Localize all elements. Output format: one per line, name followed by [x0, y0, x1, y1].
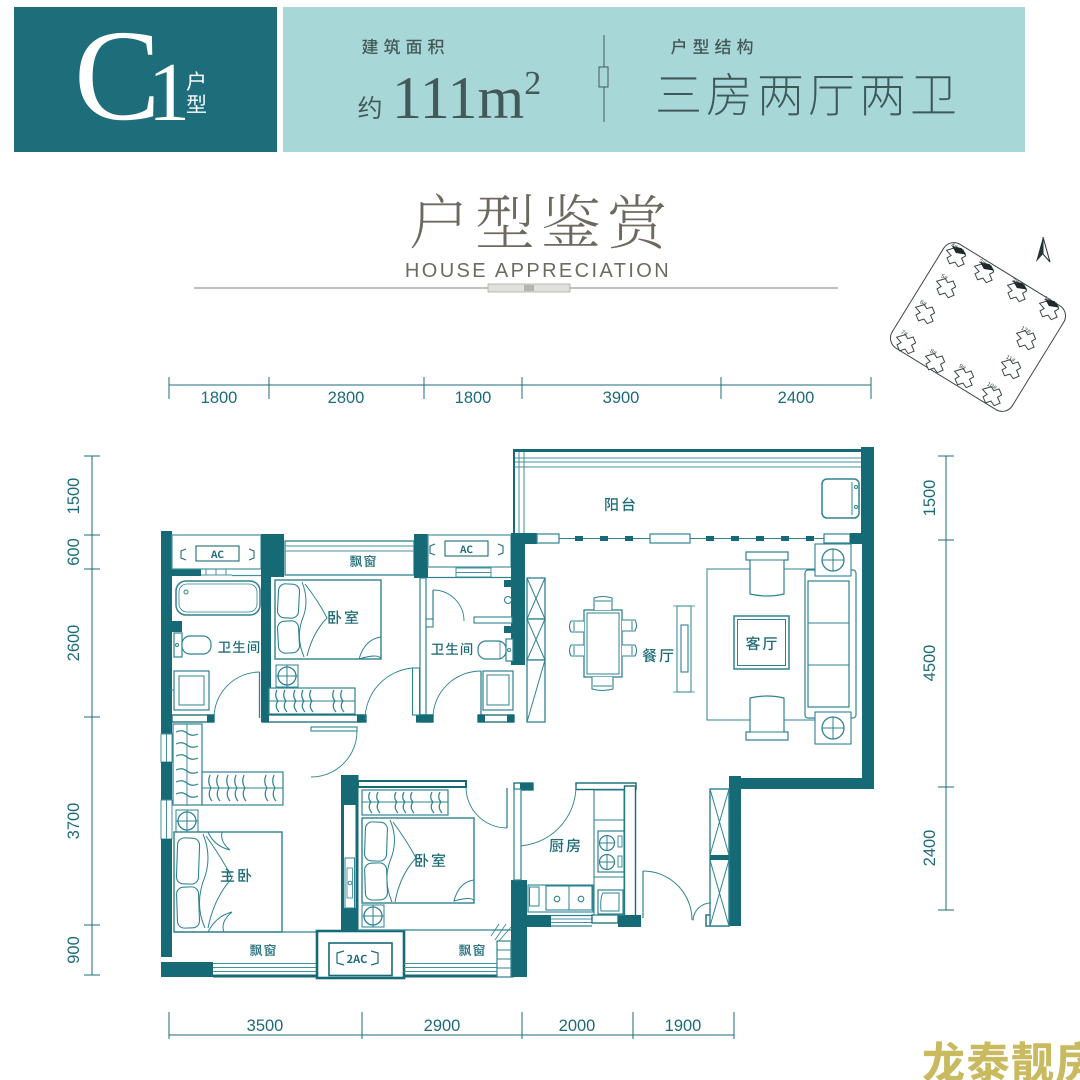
- svg-text:900: 900: [65, 936, 83, 964]
- svg-text:2400: 2400: [778, 389, 815, 407]
- svg-text:1800: 1800: [201, 389, 238, 407]
- svg-text:2000: 2000: [559, 1017, 596, 1035]
- svg-text:1800: 1800: [455, 389, 492, 407]
- svg-text:2400: 2400: [921, 830, 939, 867]
- svg-text:2900: 2900: [424, 1017, 461, 1035]
- svg-text:3900: 3900: [603, 389, 640, 407]
- svg-text:HOUSE APPRECIATION: HOUSE APPRECIATION: [405, 260, 671, 282]
- svg-text:3700: 3700: [65, 803, 83, 840]
- svg-text:111m2: 111m2: [392, 65, 541, 131]
- svg-text:1: 1: [148, 46, 190, 139]
- svg-text:2800: 2800: [328, 389, 365, 407]
- svg-text:3500: 3500: [247, 1017, 284, 1035]
- svg-text:1500: 1500: [921, 480, 939, 517]
- svg-text:1900: 1900: [665, 1017, 702, 1035]
- svg-text:2600: 2600: [65, 625, 83, 662]
- svg-text:4500: 4500: [921, 645, 939, 682]
- svg-text:600: 600: [65, 538, 83, 566]
- svg-text:1500: 1500: [65, 478, 83, 515]
